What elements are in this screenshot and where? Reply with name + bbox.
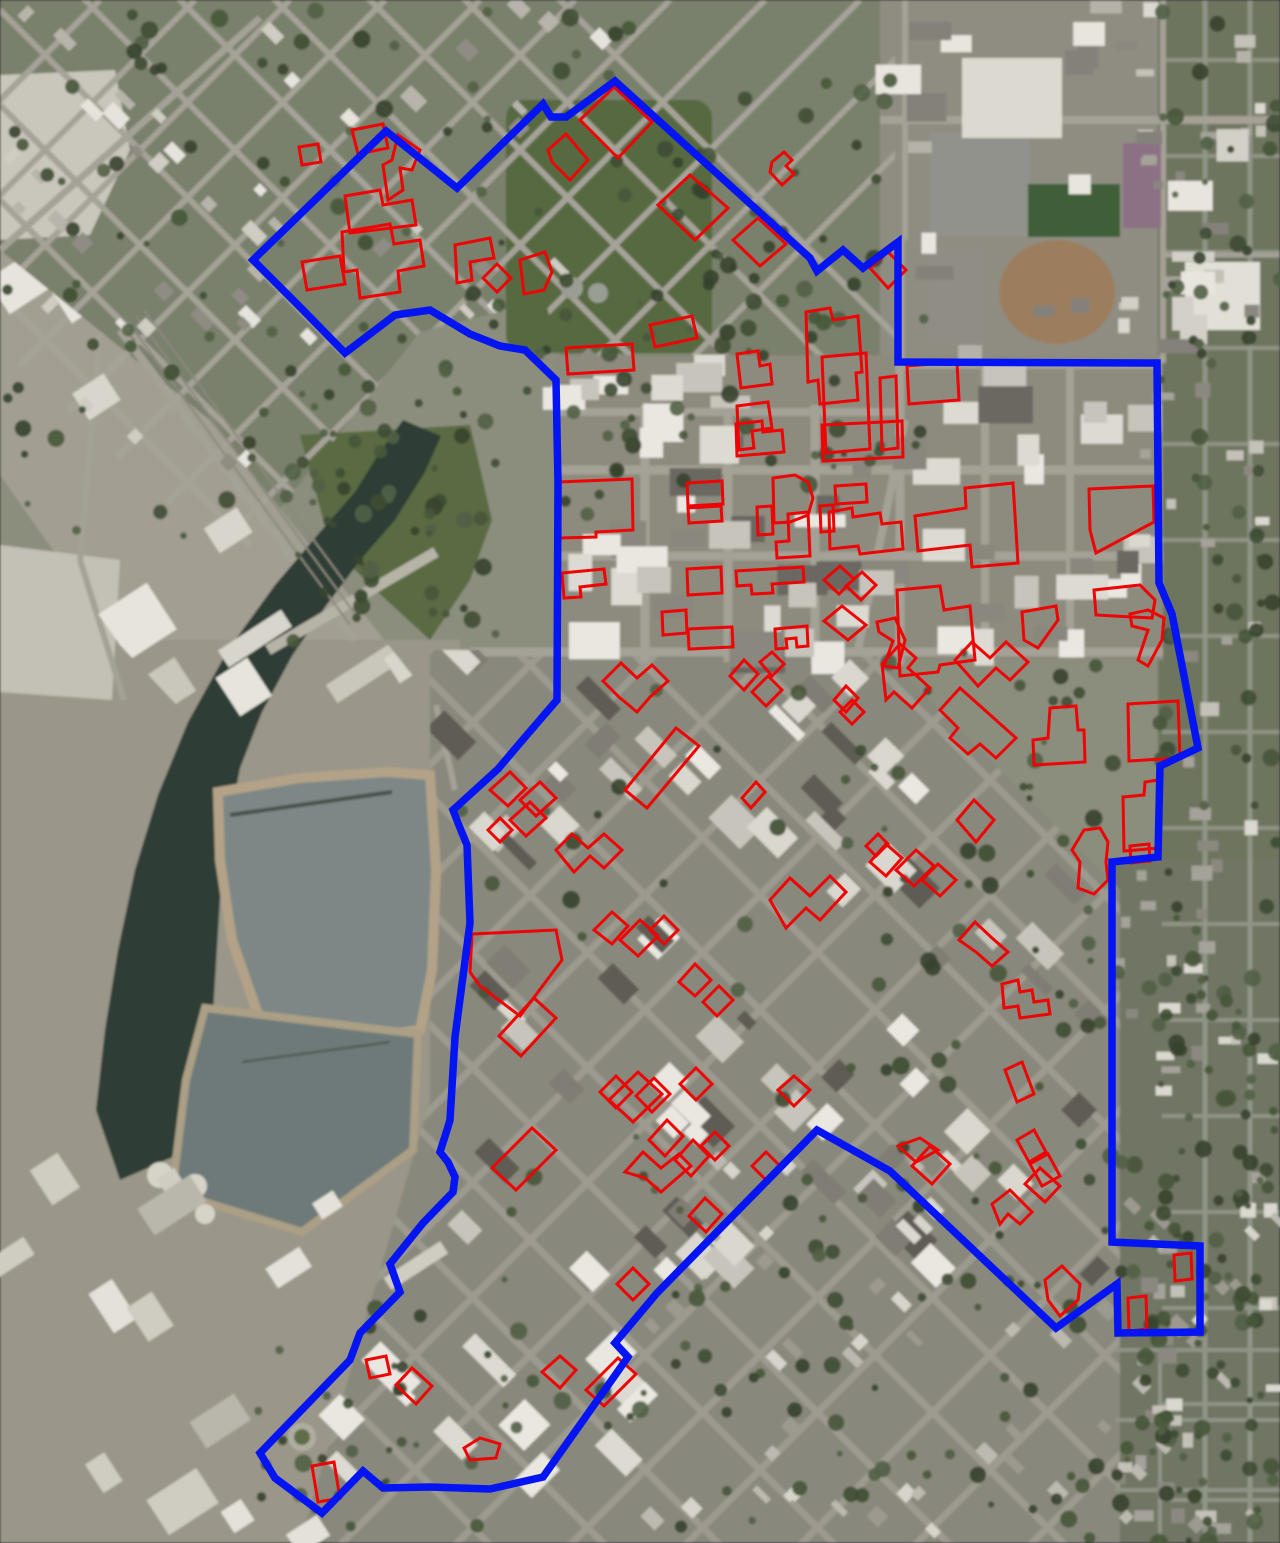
satellite-map xyxy=(0,0,1280,1543)
map-canvas xyxy=(0,0,1280,1543)
